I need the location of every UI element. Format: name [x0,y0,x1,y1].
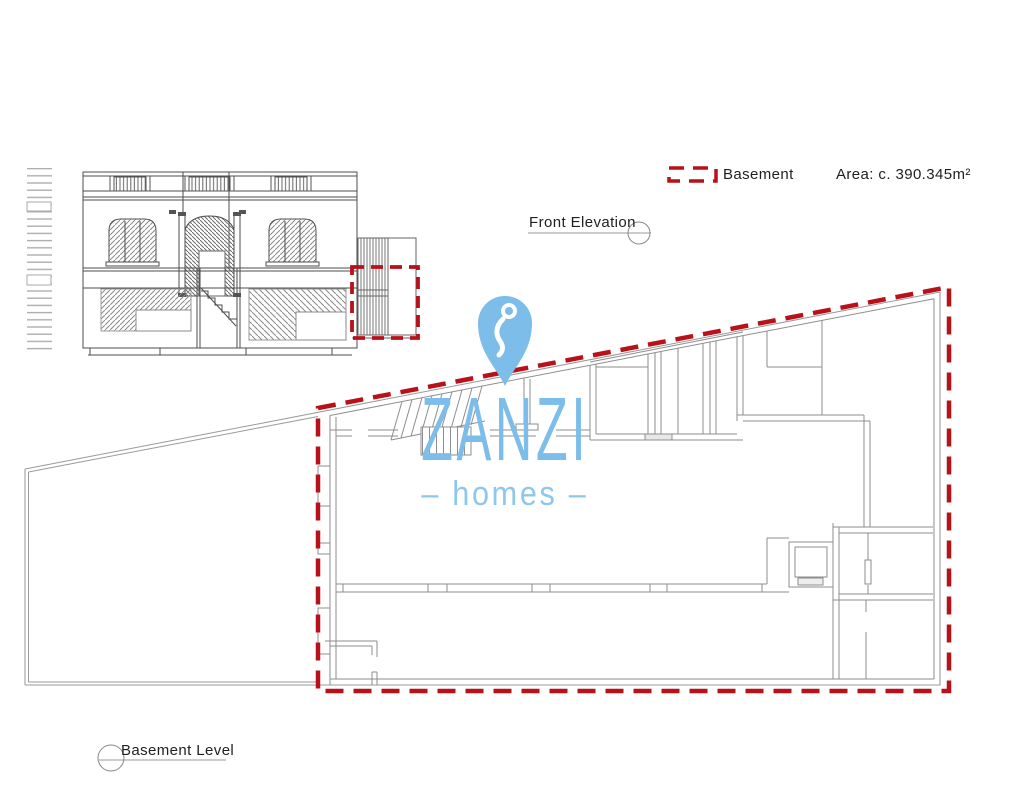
brand-text: ZANZI [421,378,589,480]
front-elevation-drawing [83,172,418,355]
front-elevation-label: Front Elevation [529,214,636,231]
entrance-door [178,212,241,297]
bottom-left-room [325,641,377,685]
vent-left [169,210,176,214]
balustrade [110,176,311,191]
window-left [106,219,159,266]
right-rooms [737,320,870,527]
blueprint-page: ZANZI – homes – Basement Area: c. 390.34… [0,0,1012,800]
basement-floor-plan [318,292,940,685]
window-right [266,219,319,266]
drawing-canvas: ZANZI – homes – [0,0,1012,800]
section-ruler [27,168,52,352]
zanzi-logo: ZANZI – homes – [421,296,589,512]
ground-floor-wall-left [101,289,191,331]
legend-swatch [669,168,716,181]
area-label: Area: c. 390.345m² [836,166,971,183]
side-wing [352,238,418,338]
plan-red-outline [318,287,949,691]
basement-level-label: Basement Level [121,742,234,759]
ground-floor-wall-right [249,289,346,340]
legend-basement-label: Basement [723,166,794,183]
bottom-right-rooms [833,523,933,679]
elevator [789,542,833,587]
tagline-text: – homes – [421,475,588,513]
corridor-wall [336,538,789,592]
top-rooms [590,332,743,440]
